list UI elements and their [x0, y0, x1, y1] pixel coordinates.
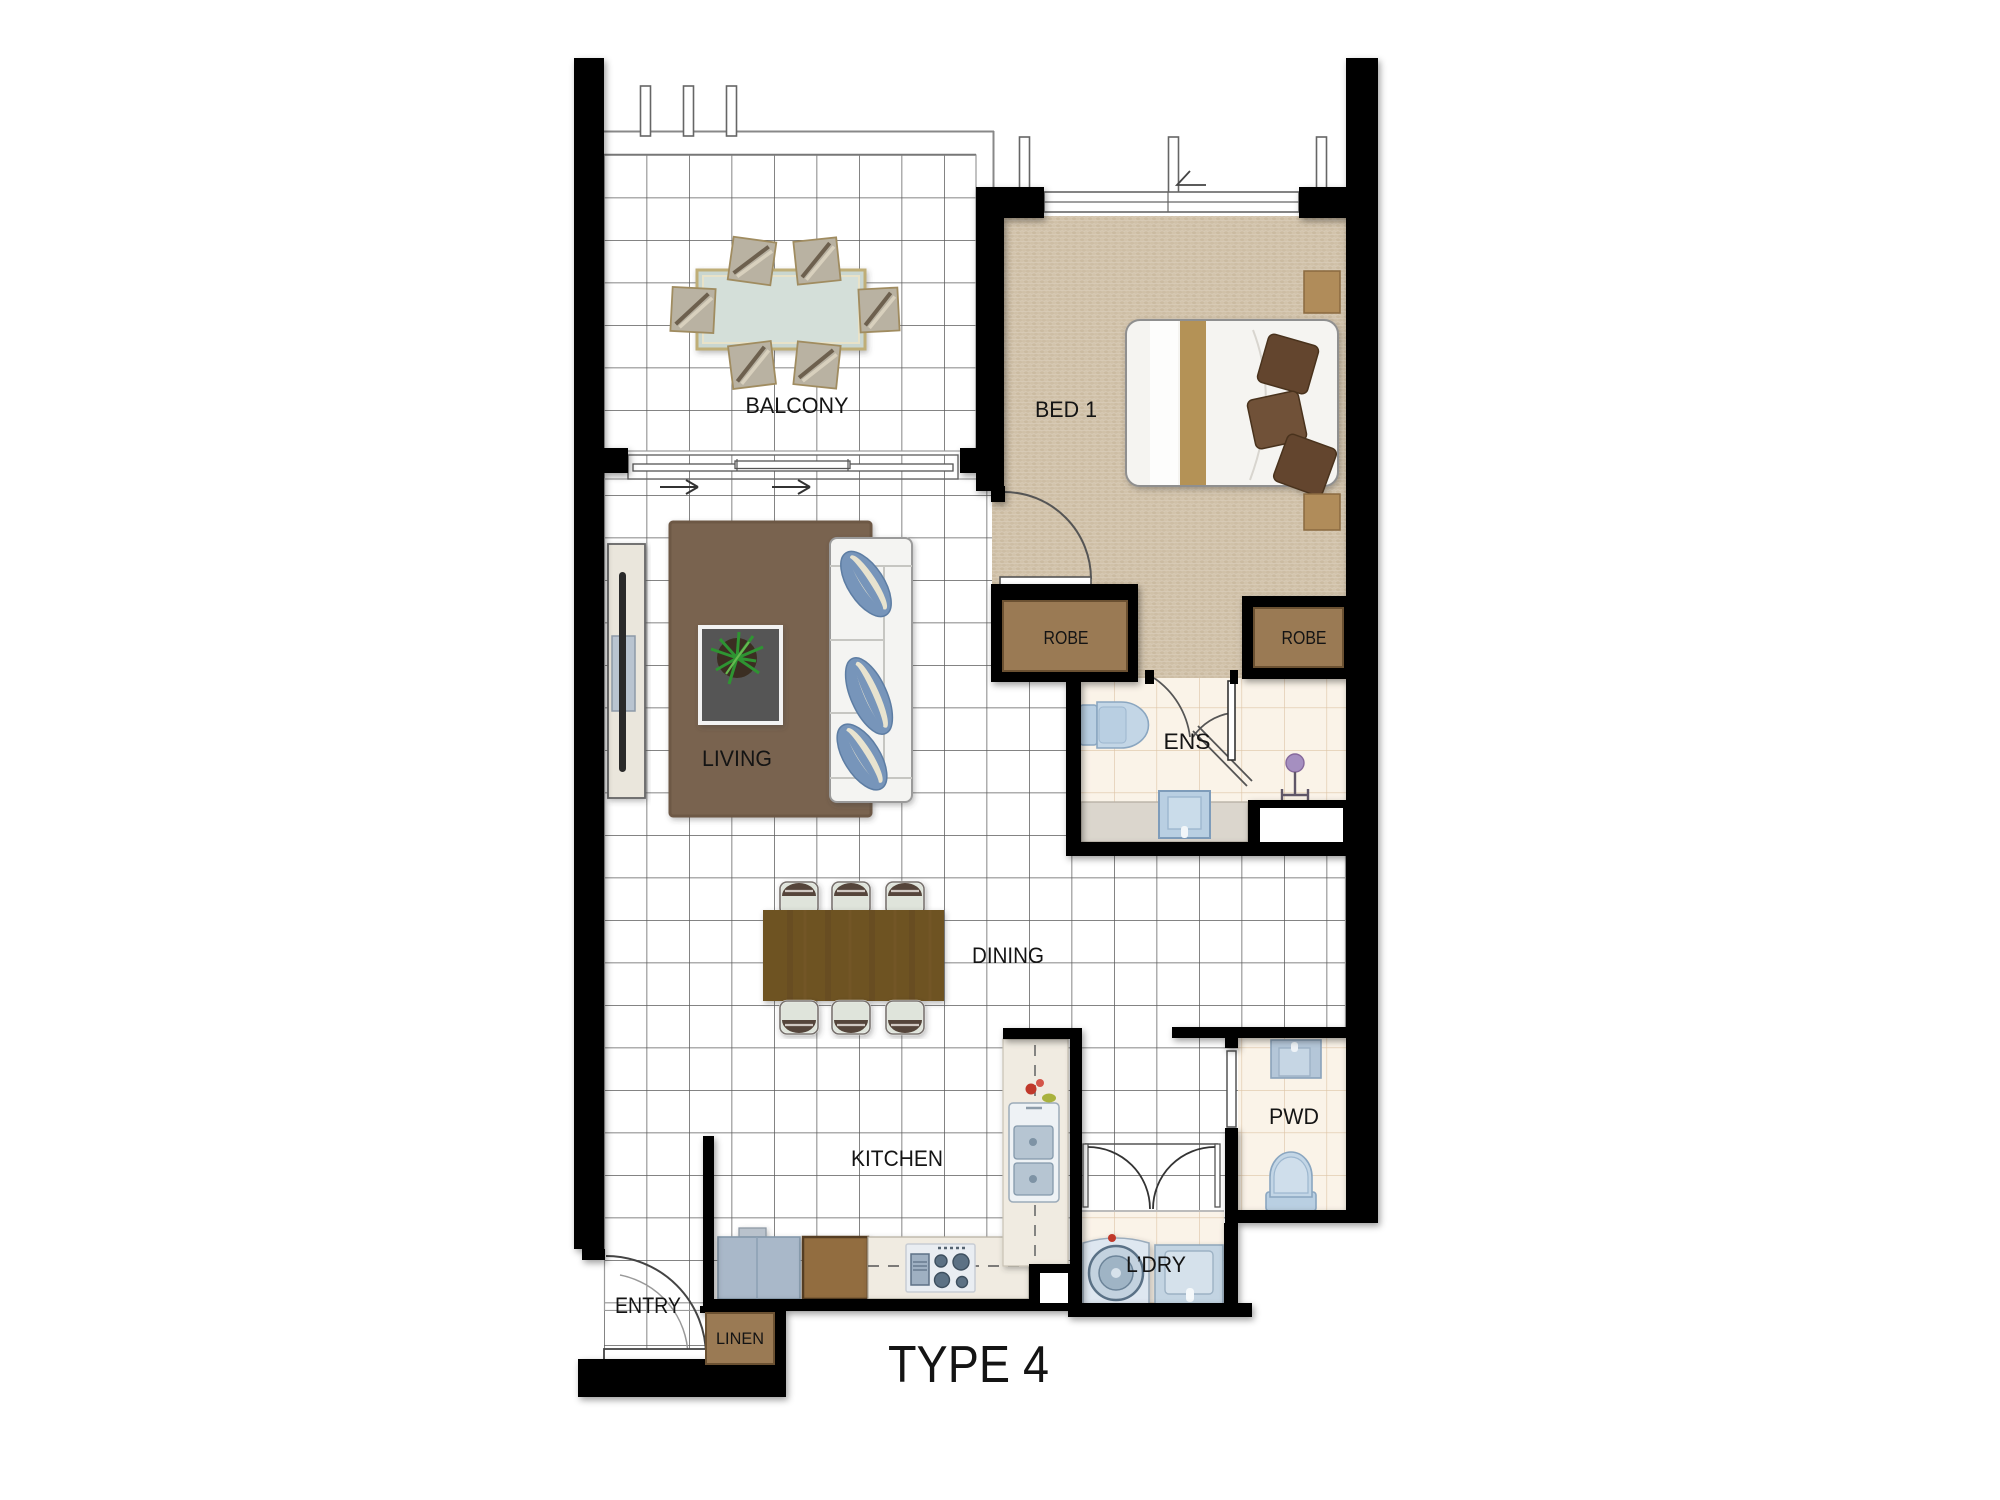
svg-text:PWD: PWD	[1269, 1104, 1319, 1129]
svg-text:L’DRY: L’DRY	[1126, 1252, 1186, 1277]
svg-text:ENTRY: ENTRY	[615, 1293, 681, 1318]
svg-text:DINING: DINING	[972, 943, 1044, 968]
svg-text:BED 1: BED 1	[1035, 397, 1097, 422]
svg-text:LIVING: LIVING	[702, 746, 772, 771]
svg-text:ENS: ENS	[1164, 729, 1211, 754]
svg-text:LINEN: LINEN	[716, 1330, 764, 1348]
svg-text:KITCHEN: KITCHEN	[851, 1146, 943, 1171]
svg-text:BALCONY: BALCONY	[746, 393, 849, 418]
svg-text:ROBE: ROBE	[1282, 627, 1327, 648]
svg-text:TYPE 4: TYPE 4	[888, 1336, 1049, 1394]
svg-text:ROBE: ROBE	[1044, 627, 1089, 648]
